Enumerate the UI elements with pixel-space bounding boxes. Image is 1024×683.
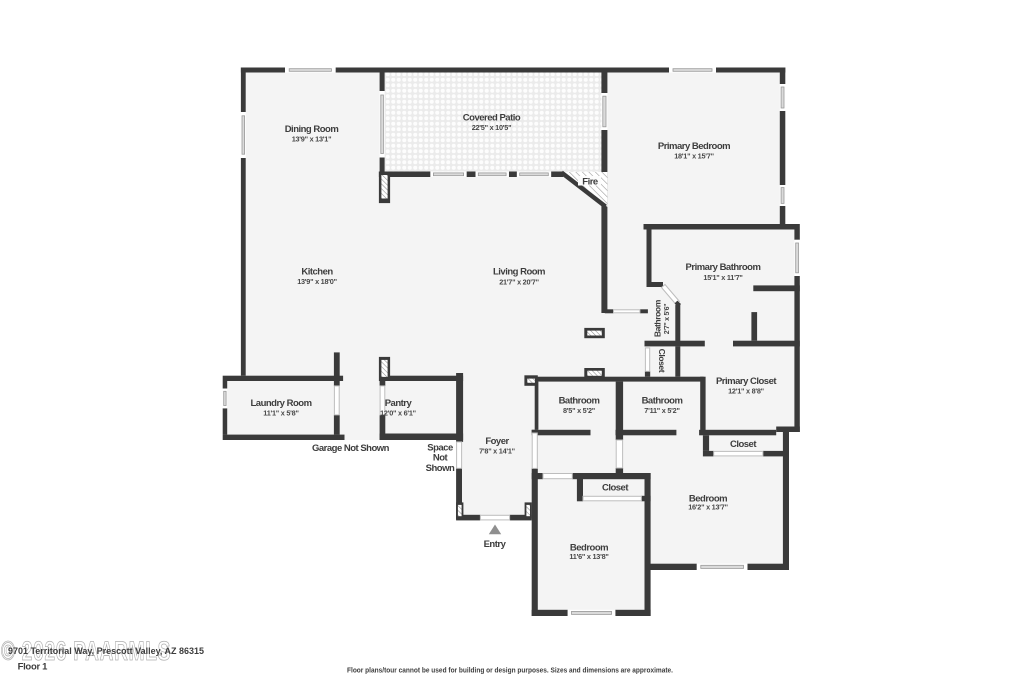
svg-text:Closet: Closet bbox=[730, 439, 757, 450]
svg-text:Dining Room: Dining Room bbox=[285, 124, 339, 135]
svg-text:Living Room: Living Room bbox=[493, 267, 545, 278]
svg-text:18'1" x 15'7": 18'1" x 15'7" bbox=[674, 152, 714, 161]
svg-text:13'9" x 13'1": 13'9" x 13'1" bbox=[292, 135, 332, 144]
svg-text:Kitchen: Kitchen bbox=[301, 267, 333, 278]
svg-text:7'11" x 5'2": 7'11" x 5'2" bbox=[644, 406, 679, 415]
svg-text:13'9" x 18'0": 13'9" x 18'0" bbox=[297, 277, 337, 286]
svg-text:Floor plans/tour cannot be use: Floor plans/tour cannot be used for buil… bbox=[347, 666, 673, 675]
svg-text:Pantry: Pantry bbox=[385, 398, 413, 409]
svg-text:Garage Not Shown: Garage Not Shown bbox=[312, 443, 390, 454]
svg-text:Primary Bathroom: Primary Bathroom bbox=[686, 262, 761, 273]
svg-text:Closet: Closet bbox=[602, 483, 629, 494]
svg-text:Closet: Closet bbox=[657, 349, 667, 373]
svg-text:Bathroom: Bathroom bbox=[642, 396, 683, 407]
svg-text:Primary Closet: Primary Closet bbox=[716, 376, 777, 387]
svg-text:11'6" x 13'8": 11'6" x 13'8" bbox=[569, 552, 608, 561]
svg-text:Shown: Shown bbox=[426, 463, 455, 474]
svg-text:Entry: Entry bbox=[484, 539, 507, 550]
svg-text:Fire: Fire bbox=[582, 177, 598, 188]
svg-text:8'5" x 5'2": 8'5" x 5'2" bbox=[563, 406, 595, 415]
svg-text:9701 Territorial Way, Prescott: 9701 Territorial Way, Prescott Valley, A… bbox=[8, 646, 205, 657]
svg-text:16'2" x 13'7": 16'2" x 13'7" bbox=[688, 503, 728, 512]
svg-text:22'5" x 10'5": 22'5" x 10'5" bbox=[472, 123, 512, 132]
svg-text:Foyer: Foyer bbox=[485, 436, 509, 447]
svg-text:12'1" x 8'8": 12'1" x 8'8" bbox=[728, 387, 764, 396]
svg-text:Laundry Room: Laundry Room bbox=[250, 398, 311, 409]
svg-text:Bathroom: Bathroom bbox=[559, 396, 600, 407]
svg-text:12'0" x 6'1": 12'0" x 6'1" bbox=[380, 409, 416, 418]
svg-text:7'8" x 14'1": 7'8" x 14'1" bbox=[479, 447, 515, 456]
svg-text:11'1" x 5'8": 11'1" x 5'8" bbox=[263, 409, 298, 418]
svg-text:Bathroom: Bathroom bbox=[653, 299, 663, 337]
svg-text:15'1" x 11'7": 15'1" x 11'7" bbox=[703, 273, 742, 282]
svg-text:Primary Bedroom: Primary Bedroom bbox=[658, 141, 730, 152]
svg-text:Floor 1: Floor 1 bbox=[18, 662, 49, 673]
svg-text:2'7" x 5'6": 2'7" x 5'6" bbox=[664, 304, 671, 335]
svg-text:Covered Patio: Covered Patio bbox=[463, 113, 521, 124]
svg-text:21'7" x 20'7": 21'7" x 20'7" bbox=[499, 278, 539, 287]
